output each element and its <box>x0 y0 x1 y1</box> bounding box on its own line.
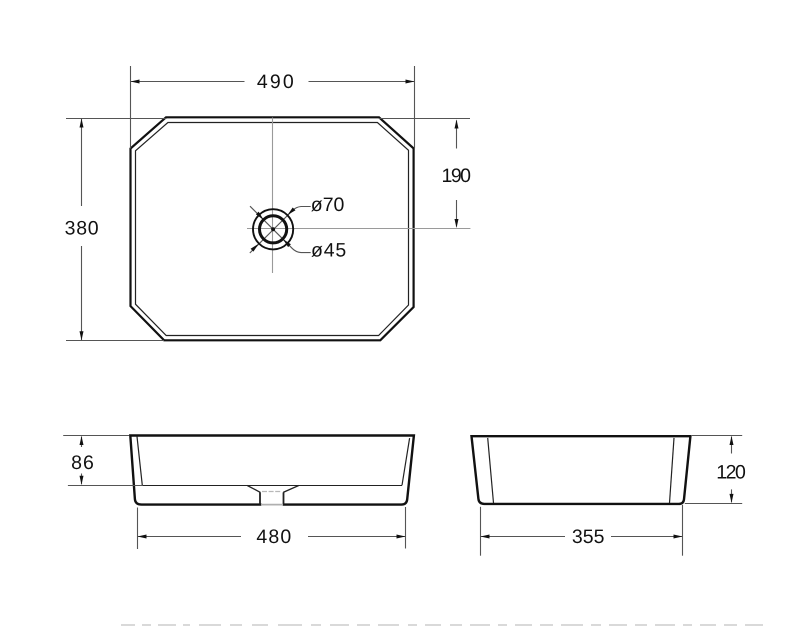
svg-text:490: 490 <box>257 71 296 93</box>
svg-text:ø45: ø45 <box>311 239 347 261</box>
svg-text:120: 120 <box>716 461 746 483</box>
svg-text:355: 355 <box>572 526 605 548</box>
svg-text:86: 86 <box>71 452 95 474</box>
svg-text:380: 380 <box>65 217 100 239</box>
svg-text:190: 190 <box>441 165 471 187</box>
svg-text:ø70: ø70 <box>311 194 345 216</box>
svg-text:480: 480 <box>256 526 292 548</box>
